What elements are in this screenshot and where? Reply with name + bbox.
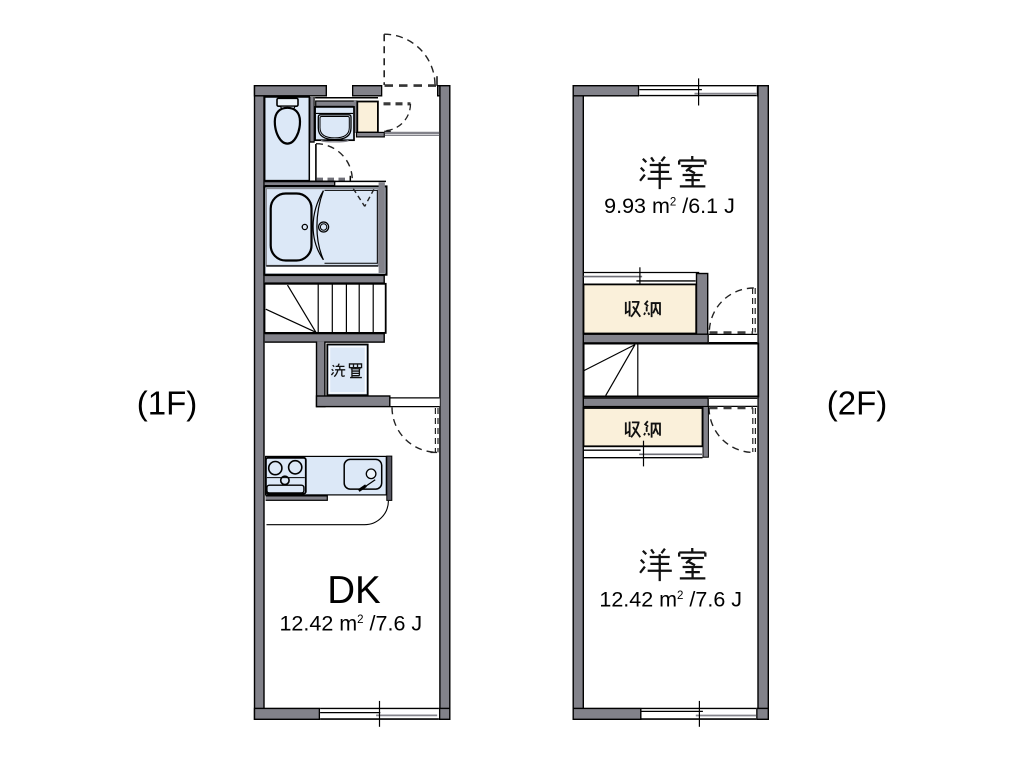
- svg-text:DK: DK: [327, 569, 381, 612]
- svg-text:12.42 m2 /7.6 J: 12.42 m2 /7.6 J: [279, 612, 422, 636]
- svg-text:12.42 m2 /7.6 J: 12.42 m2 /7.6 J: [599, 588, 742, 612]
- svg-text:9.93 m2 /6.1 J: 9.93 m2 /6.1 J: [604, 194, 735, 218]
- svg-text:(1F): (1F): [137, 385, 198, 422]
- svg-text:(2F): (2F): [827, 385, 888, 422]
